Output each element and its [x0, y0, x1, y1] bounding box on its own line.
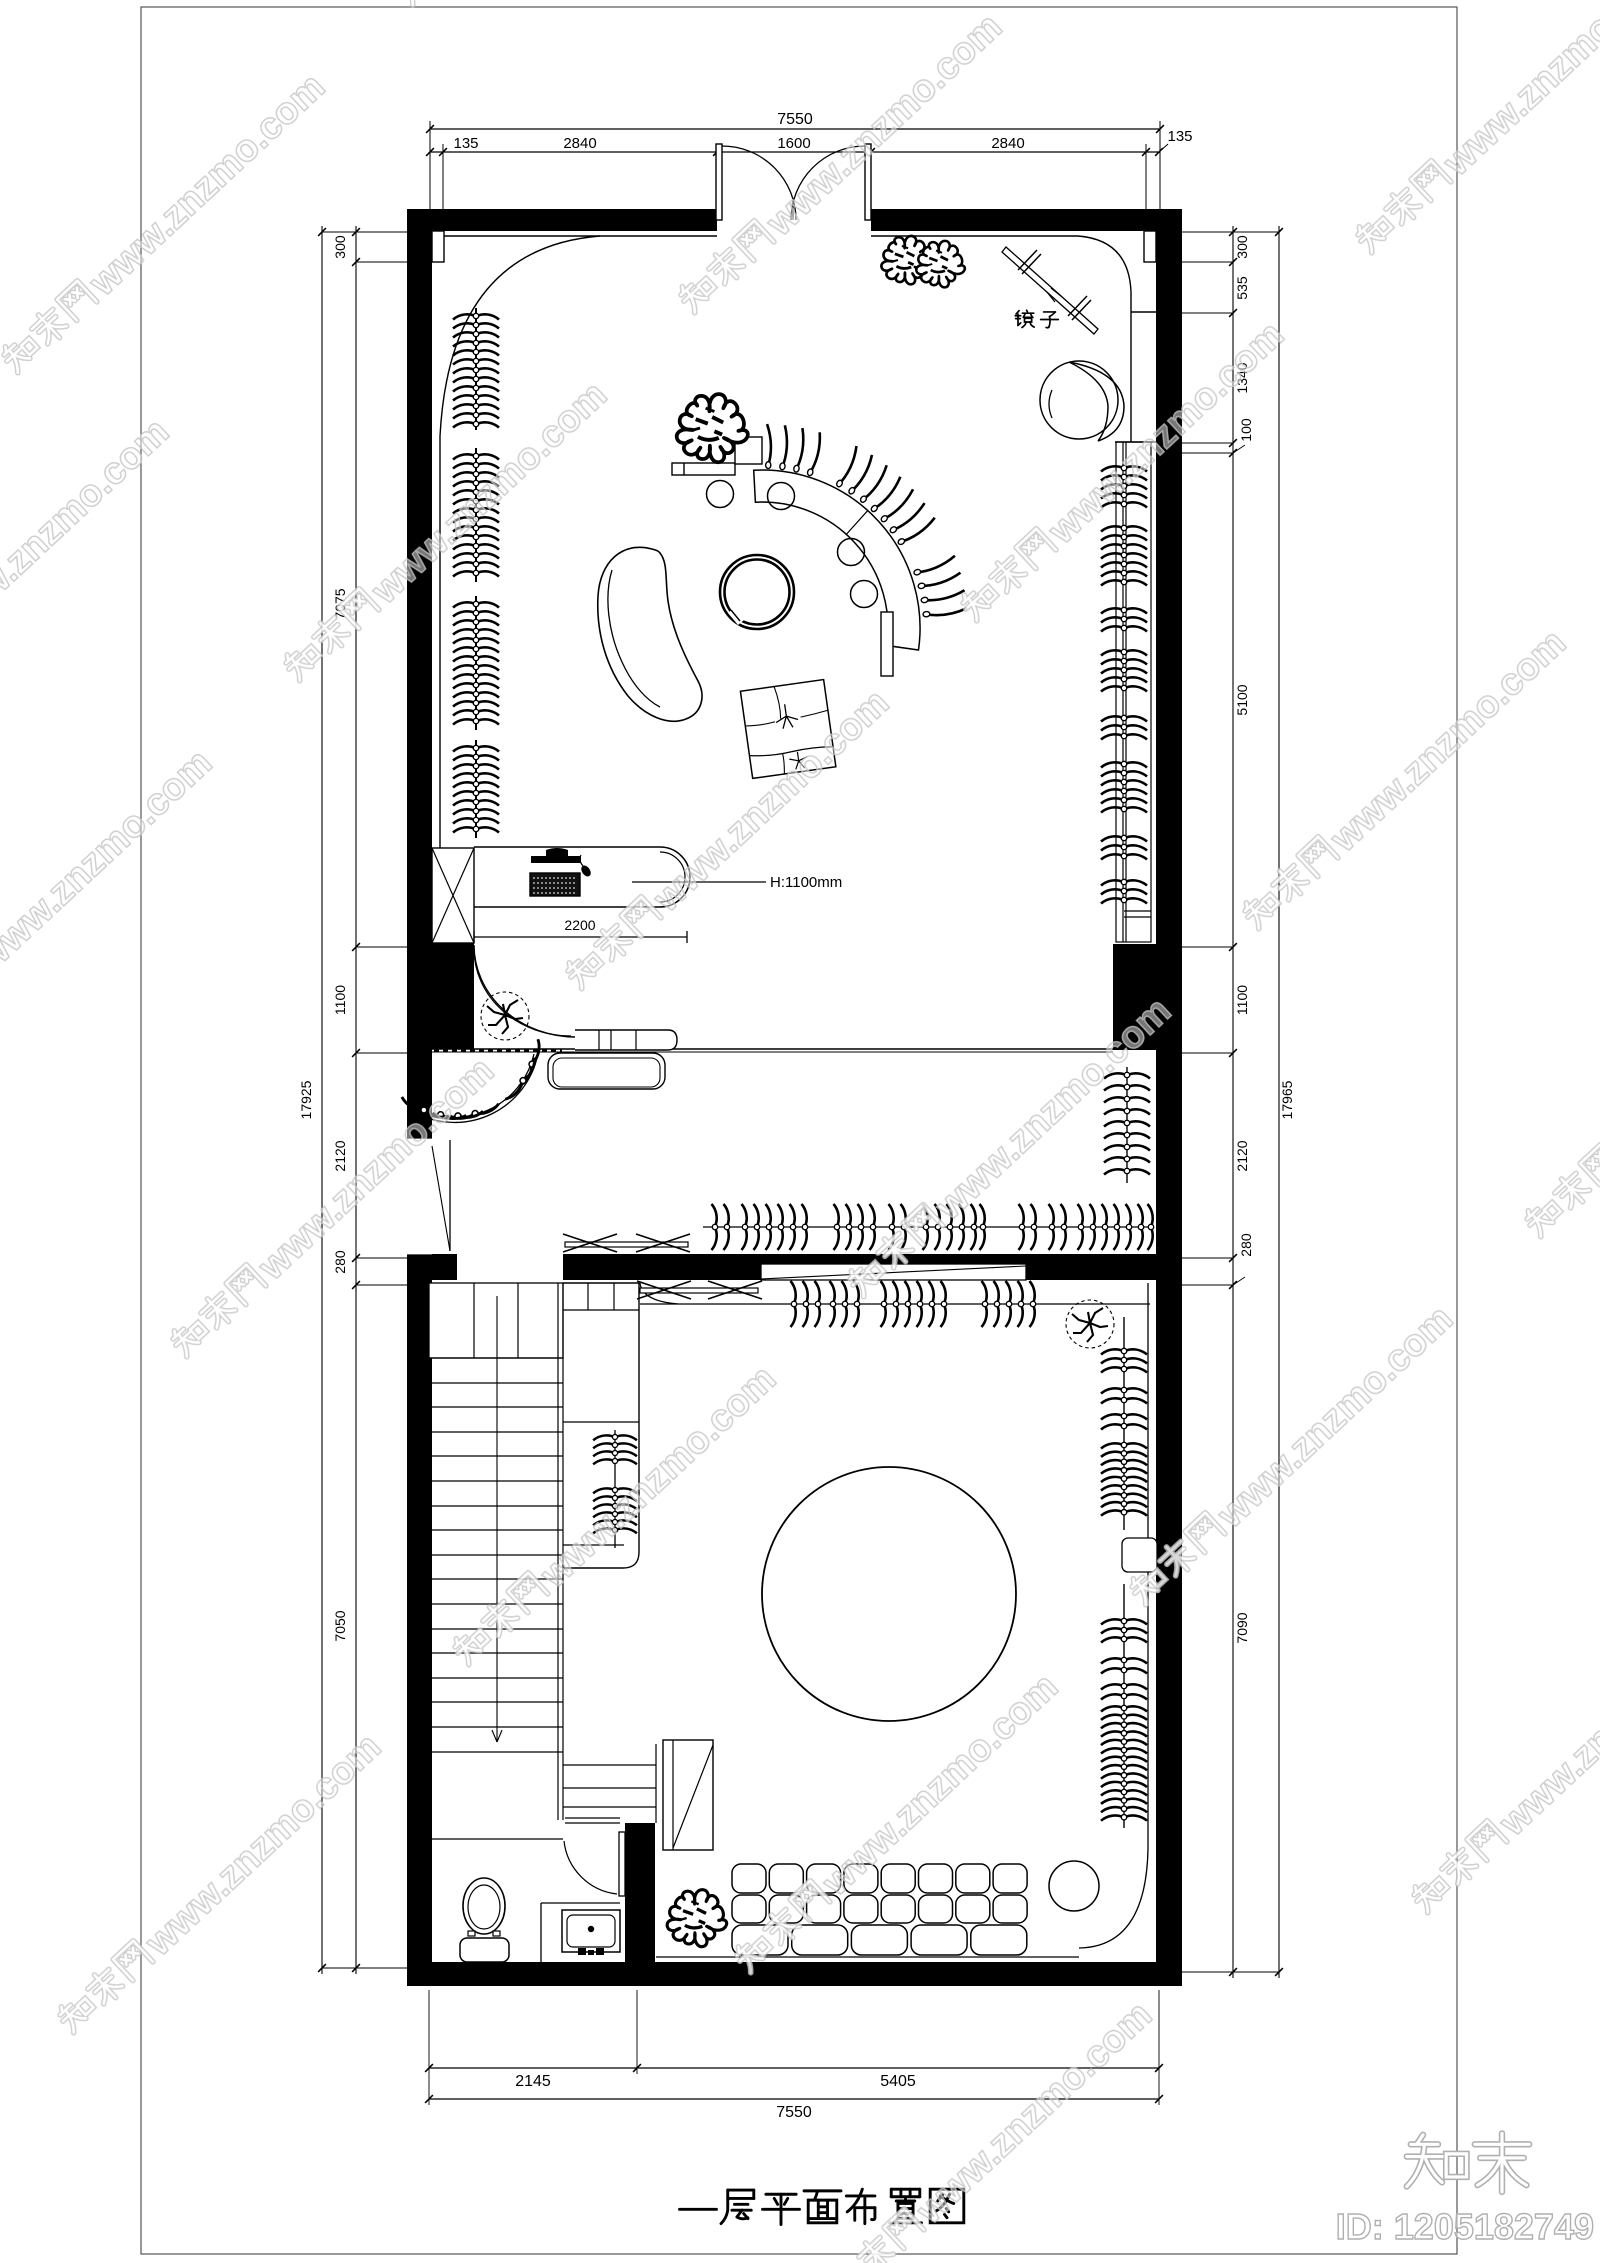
- svg-text:2200: 2200: [564, 917, 595, 933]
- svg-text:7550: 7550: [776, 2104, 812, 2121]
- svg-text:H:1100mm: H:1100mm: [770, 874, 842, 891]
- svg-text:100: 100: [1238, 418, 1254, 442]
- svg-text:300: 300: [1234, 235, 1250, 259]
- svg-text:7050: 7050: [332, 1610, 348, 1641]
- svg-text:300: 300: [332, 235, 348, 259]
- svg-text:1100: 1100: [332, 985, 348, 1015]
- svg-text:2120: 2120: [1234, 1140, 1250, 1171]
- svg-text:280: 280: [1238, 1233, 1254, 1257]
- svg-text:7550: 7550: [777, 111, 813, 128]
- svg-text:17965: 17965: [1279, 1080, 1295, 1119]
- svg-text:7090: 7090: [1234, 1612, 1250, 1643]
- svg-text:135: 135: [1167, 128, 1192, 145]
- svg-text:2145: 2145: [515, 2073, 551, 2090]
- svg-text:1100: 1100: [1234, 985, 1250, 1015]
- svg-text:5100: 5100: [1234, 684, 1250, 715]
- svg-text:2840: 2840: [991, 135, 1024, 152]
- svg-text:1600: 1600: [777, 135, 810, 152]
- svg-text:2120: 2120: [332, 1140, 348, 1171]
- svg-text:2840: 2840: [563, 135, 596, 152]
- svg-text:17925: 17925: [298, 1080, 314, 1119]
- svg-text:5405: 5405: [880, 2073, 916, 2090]
- svg-text:ID: 1205182749: ID: 1205182749: [1336, 2206, 1594, 2247]
- svg-text:535: 535: [1234, 276, 1250, 300]
- svg-text:135: 135: [453, 135, 478, 152]
- svg-text:280: 280: [332, 1250, 348, 1274]
